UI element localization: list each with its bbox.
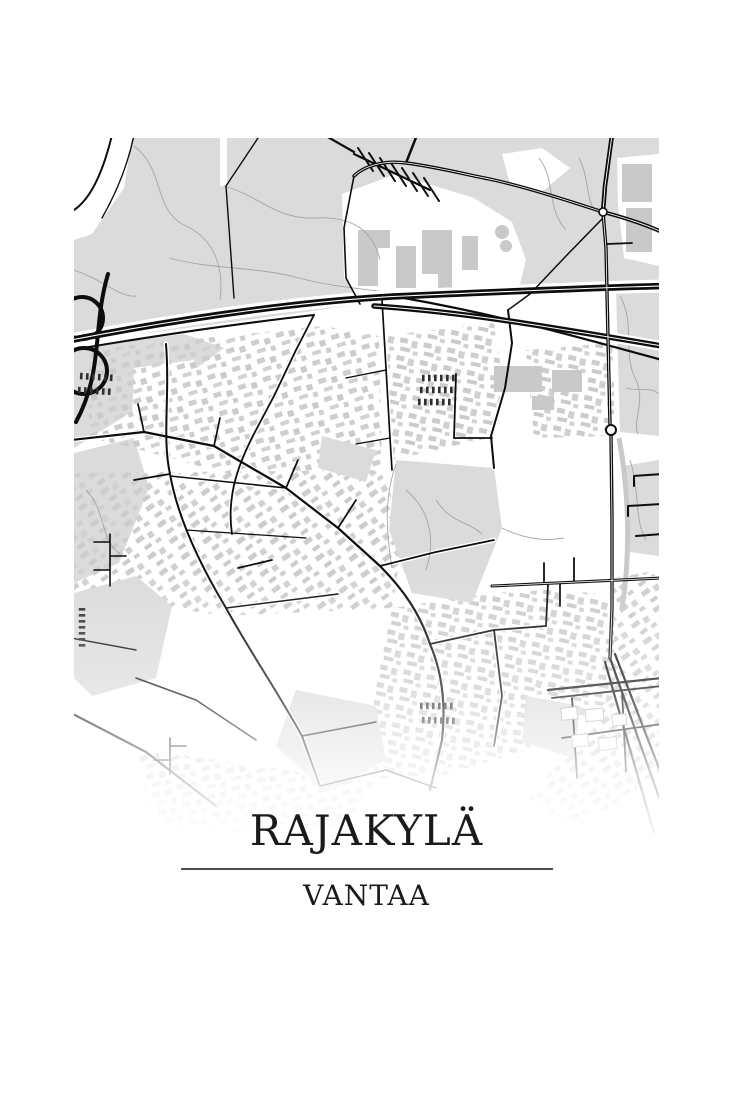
title-divider (181, 868, 553, 870)
poster-subtitle: VANTAA (74, 881, 659, 911)
page: { "poster": { "title": "RAJAKYLÄ", "subt… (0, 0, 732, 1094)
map-poster: RAJAKYLÄ VANTAA (74, 138, 659, 956)
map-graphic (74, 138, 659, 898)
poster-title: RAJAKYLÄ (74, 810, 659, 852)
caption-block: RAJAKYLÄ VANTAA (74, 810, 659, 911)
